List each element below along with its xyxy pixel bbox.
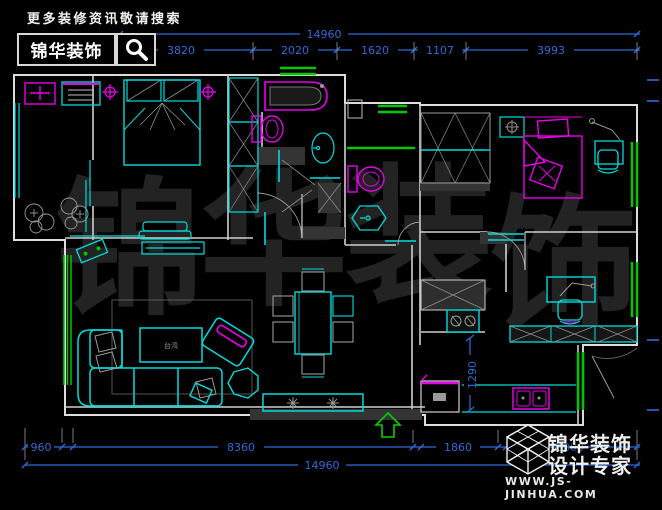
ceiling-lamp-icon — [102, 84, 216, 100]
dim-top-seg1: 3820 — [167, 44, 195, 57]
door-arc — [257, 193, 302, 238]
bathtub — [265, 82, 327, 110]
double-bed — [124, 80, 200, 165]
wardrobe — [229, 78, 258, 212]
tv-console — [142, 242, 204, 254]
speaker-box — [76, 239, 107, 262]
plant-icon — [25, 198, 88, 233]
coffee-table: 台湾 — [140, 328, 202, 362]
washing-machine — [25, 83, 55, 104]
desk-lamp-icon — [590, 119, 621, 141]
sofa-pillows — [95, 332, 216, 398]
dim-kitchen-passage: 1290 — [466, 361, 479, 389]
wardrobe-2 — [421, 113, 490, 183]
kitchen-sink — [513, 388, 549, 409]
bedroom-bench — [139, 222, 191, 239]
fridge — [421, 375, 459, 412]
magnifier-icon — [122, 37, 150, 62]
rug — [112, 300, 252, 394]
search-slogan: 更多装修资讯敬请搜索 — [27, 8, 182, 27]
kitchen-upper-cabinet — [421, 280, 485, 310]
coffee-table-label: 台湾 — [164, 341, 178, 350]
dim-top-seg2: 2020 — [281, 44, 309, 57]
right-dim-stubs — [647, 80, 659, 410]
cooktop — [447, 310, 479, 332]
kitchen-dim: 1290 — [464, 335, 479, 413]
footer-website: WWW.JS-JINHUA.COM — [505, 475, 662, 501]
hex-sink — [352, 206, 386, 230]
outer-walls — [14, 75, 637, 425]
dim-top-seg3: 1620 — [361, 44, 389, 57]
sofa — [78, 330, 222, 406]
dim-top-seg5: 3993 — [537, 44, 565, 57]
kitchen-counter — [462, 385, 576, 412]
utility-cabinet — [62, 82, 100, 105]
floorplan-image: 锦 华 装 饰 更多装修资讯敬请搜索 锦华装饰 锦华装饰 设计专家 WWW.JS… — [0, 0, 662, 510]
search-box — [116, 33, 156, 66]
dim-top-seg4: 1107 — [426, 44, 454, 57]
dining-table — [273, 269, 353, 377]
dim-top-overall: 14960 — [307, 28, 342, 41]
cube-logo-icon — [505, 423, 551, 477]
shower-detail — [282, 160, 315, 212]
brand-name: 锦华装饰 — [31, 37, 103, 62]
desk-chair — [595, 141, 623, 173]
dim-bottom-seg3: 1860 — [444, 441, 472, 454]
door-arc — [592, 348, 637, 358]
ceiling-light-box — [500, 117, 524, 137]
single-bed — [524, 117, 582, 198]
study-chair — [558, 300, 582, 324]
armchair — [201, 317, 255, 367]
toilet-2 — [348, 166, 384, 192]
study-cabinets — [510, 326, 637, 342]
study-desk — [547, 277, 595, 302]
bathroom-sink — [312, 133, 334, 163]
dim-bottom-overall: 14960 — [305, 459, 340, 472]
door-leaf — [592, 356, 614, 398]
brand-logo-box: 锦华装饰 — [17, 33, 116, 66]
sideboard — [263, 394, 363, 411]
dim-bottom-seg1: 960 — [31, 441, 52, 454]
dim-bottom-seg2: 8360 — [227, 441, 255, 454]
